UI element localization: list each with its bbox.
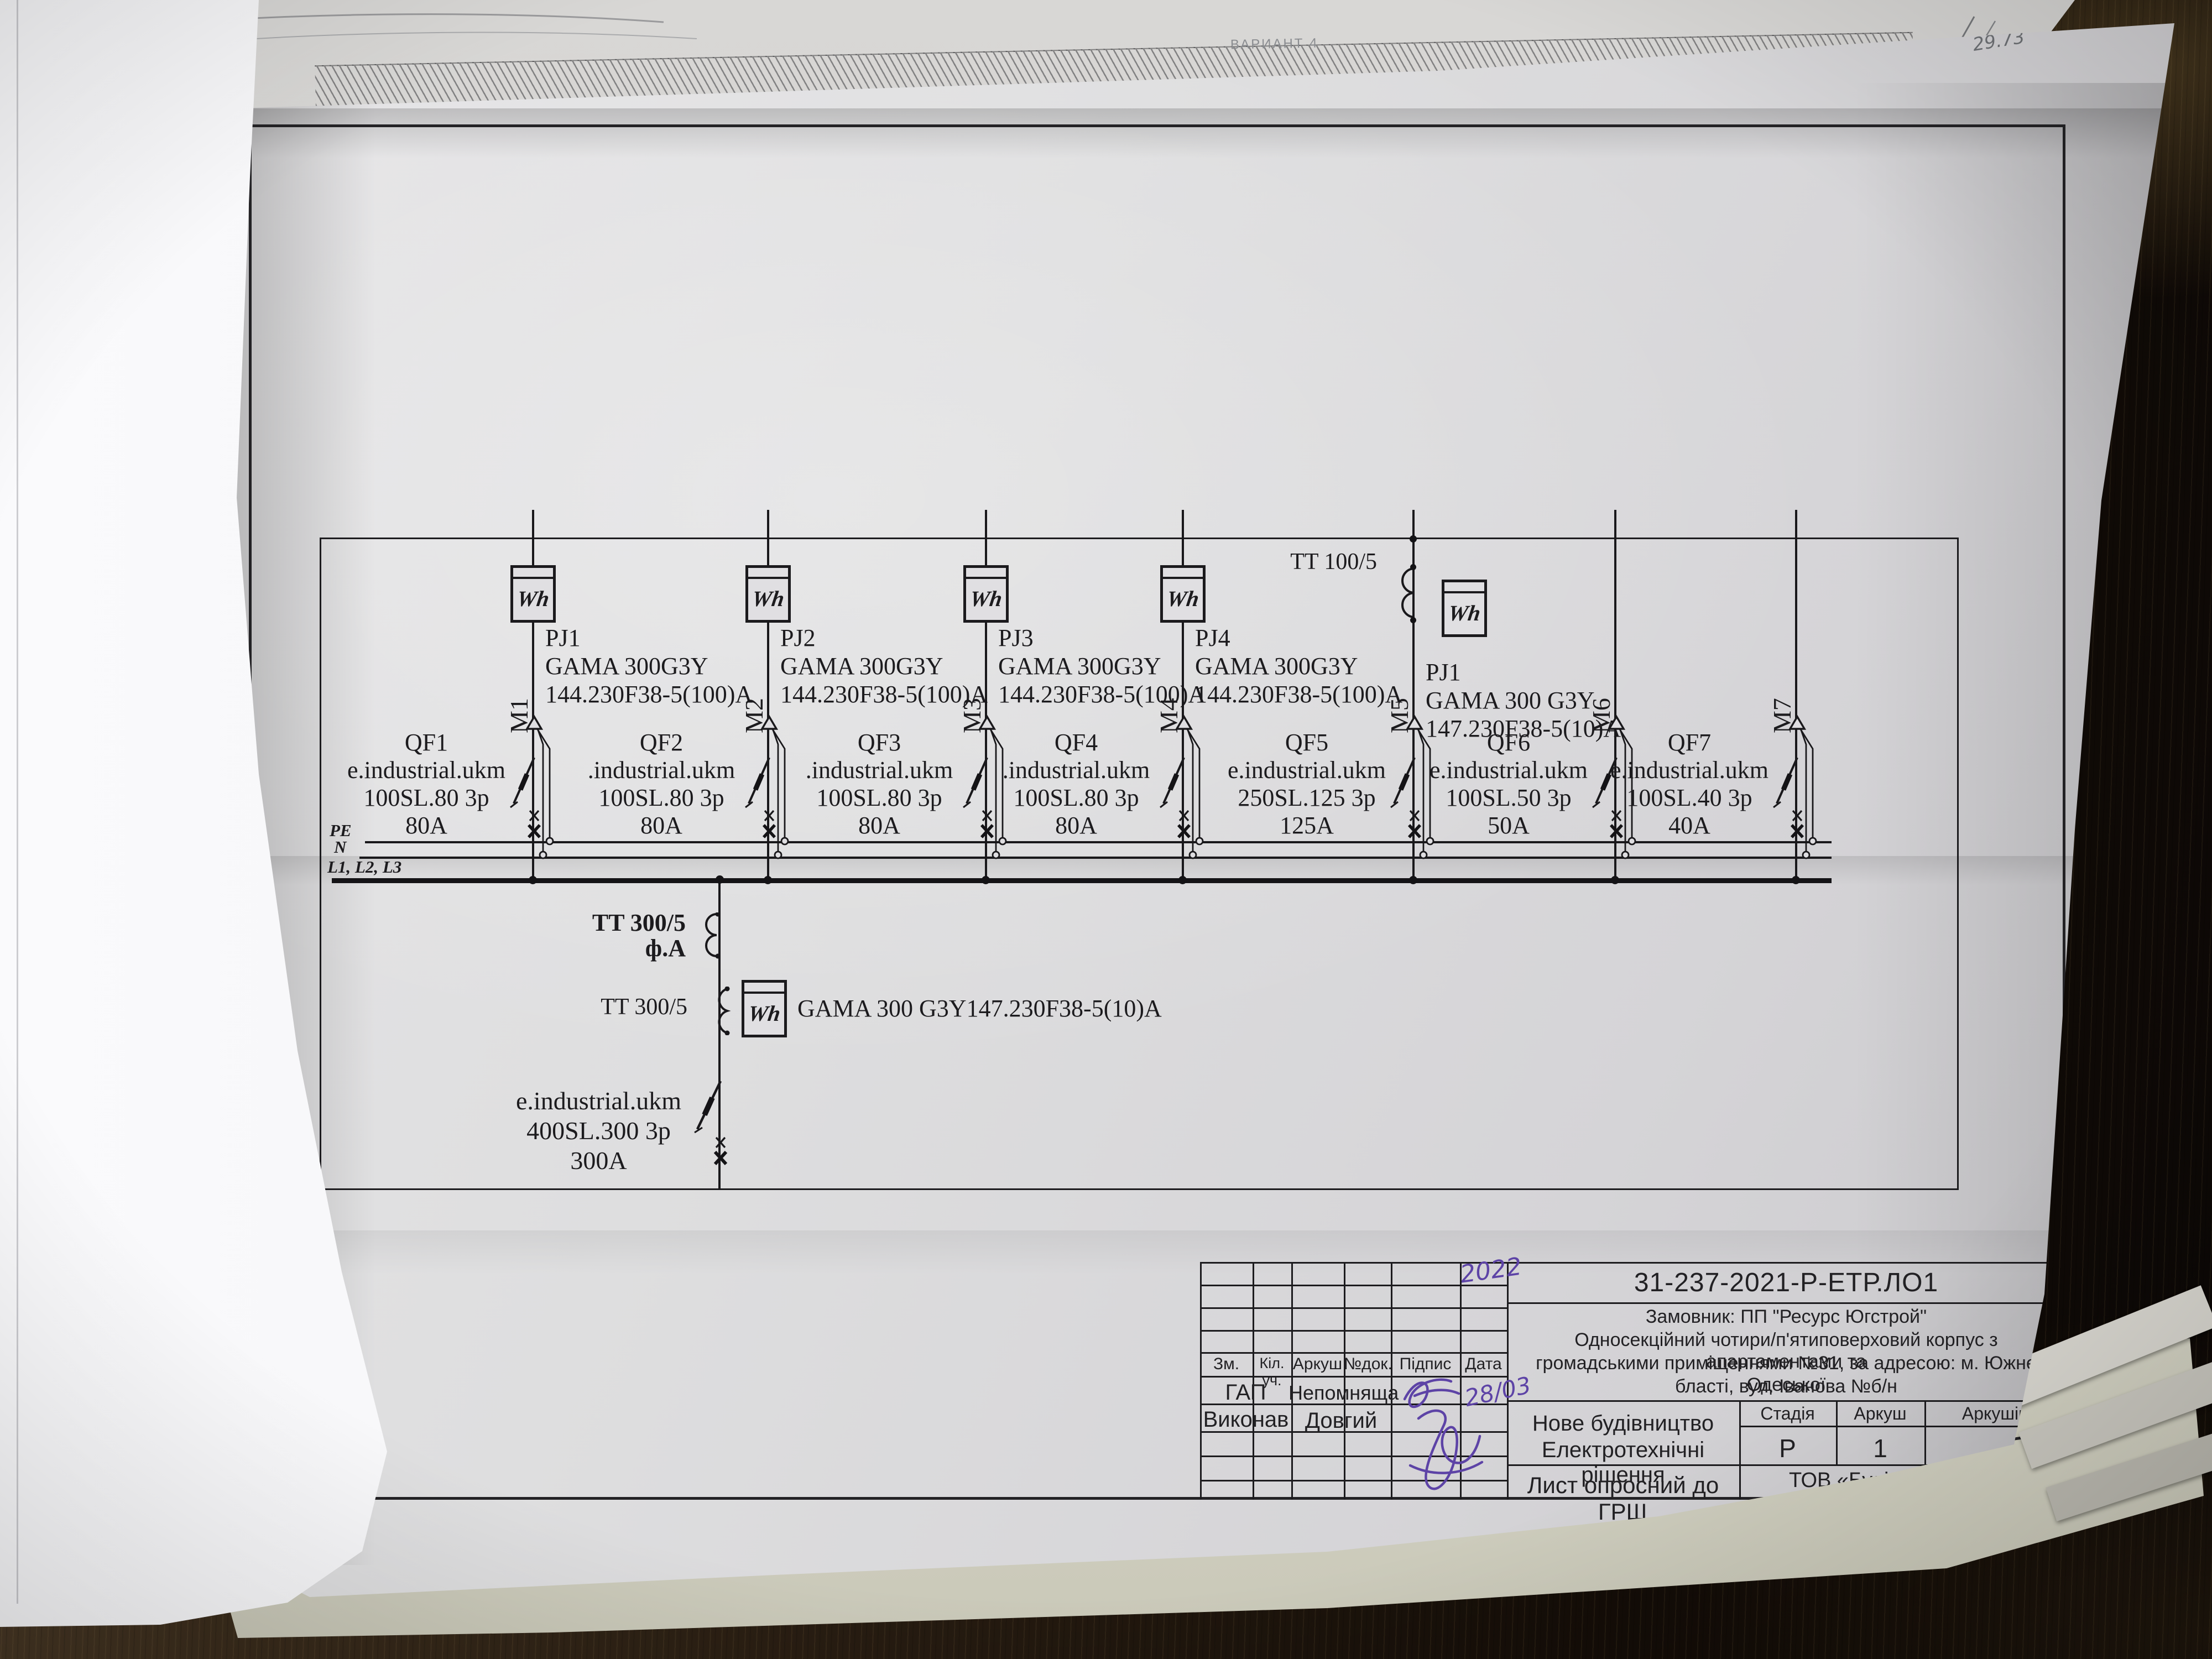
breaker-spec-line2: .industrial.ukm xyxy=(984,757,1168,784)
wh-meter-icon: Wh xyxy=(742,994,787,1034)
meter-terminal-strip xyxy=(744,983,784,994)
breaker-spec: QF3 .industrial.ukm 100SL.80 3p 80A xyxy=(787,729,972,839)
breaker-spec-line2: e.industrial.ukm xyxy=(1597,757,1782,784)
breaker-spec-line2: e.industrial.ukm xyxy=(1214,757,1399,784)
breaker-spec: QF7 e.industrial.ukm 100SL.40 3p 40A xyxy=(1597,729,1782,839)
current-transformer-icon xyxy=(690,987,732,1035)
incomer-ct1-label: TT 300/5 ф.А xyxy=(531,910,686,961)
breaker-spec-line1: QF3 xyxy=(787,729,972,757)
breaker-spec-line3: 100SL.80 3p xyxy=(787,784,972,812)
incomer-breaker-line2: 400SL.300 3p xyxy=(509,1116,688,1146)
stage-value: Р xyxy=(1739,1433,1836,1463)
ct1-label-line1: TT 300/5 xyxy=(531,910,686,936)
tb-line xyxy=(1507,1400,2065,1402)
row1-role: ГАП xyxy=(1200,1380,1291,1405)
photo-of-electrical-drawing: ВАРИАНТ 4 Формат А3 -3.720 29.73 xyxy=(0,0,2212,1659)
bus-junction-dot xyxy=(1792,876,1800,884)
project-title-1: Нове будівництво xyxy=(1512,1411,1734,1436)
col-zm: Зм. xyxy=(1200,1355,1253,1374)
breaker-spec-line3: 100SL.80 3p xyxy=(984,784,1168,812)
page-fold-line xyxy=(17,0,18,1604)
breaker-spec-line4: 80A xyxy=(984,812,1168,839)
breaker-spec-line1: QF2 xyxy=(569,729,754,757)
breaker-spec-line2: e.industrial.ukm xyxy=(334,757,519,784)
incomer-breaker-icon xyxy=(679,1073,734,1194)
row1-name: Непомняща xyxy=(1288,1381,1394,1405)
breaker-spec-line3: 100SL.40 3p xyxy=(1597,784,1782,812)
stage-header: Стадія xyxy=(1739,1404,1836,1424)
feeder-M7: M7 QF7 e.industrial.ukm 100SL.40 3p 40A xyxy=(1565,498,2052,896)
col-dok: №док. xyxy=(1344,1355,1391,1374)
project-desc-3: бласті, вул. Іванова №б/н xyxy=(1512,1376,2060,1397)
sheet-header: Аркуш xyxy=(1836,1404,1924,1424)
signature xyxy=(1388,1366,1510,1504)
breaker-spec: QF4 .industrial.ukm 100SL.80 3p 80A xyxy=(984,729,1168,839)
breaker-spec-line4: 80A xyxy=(787,812,972,839)
breaker-spec-line1: QF1 xyxy=(334,729,519,757)
tb-line xyxy=(1344,1262,1345,1500)
col-arkush: Аркуш xyxy=(1291,1355,1344,1374)
tb-line xyxy=(1200,1262,2065,1264)
breaker-spec: QF5 e.industrial.ukm 250SL.125 3p 125A xyxy=(1214,729,1399,839)
feeder-breaker-icon xyxy=(1759,713,1836,896)
breaker-spec-line4: 40A xyxy=(1597,812,1782,839)
row2-name: Довгий xyxy=(1288,1408,1394,1433)
breaker-spec-line4: 125A xyxy=(1214,812,1399,839)
breaker-spec-line1: QF5 xyxy=(1214,729,1399,757)
sheet-number: 1 xyxy=(1836,1433,1924,1463)
breaker-spec: QF2 .industrial.ukm 100SL.80 3p 80A xyxy=(569,729,754,839)
breaker-spec-line4: 80A xyxy=(334,812,519,839)
incomer-meter: Wh xyxy=(742,980,787,1037)
ct-label: TT 100/5 xyxy=(1253,549,1377,575)
incomer-meter-type: GAMA 300 G3Y147.230F38-5(10)A xyxy=(797,994,1162,1022)
ct1-label-line2: ф.А xyxy=(531,936,686,961)
tb-line xyxy=(1507,1302,2065,1304)
breaker-spec-line1: QF7 xyxy=(1597,729,1782,757)
tb-line xyxy=(1739,1426,2065,1427)
breaker-spec-line2: .industrial.ukm xyxy=(787,757,972,784)
incomer-breaker-line3: 300A xyxy=(509,1146,688,1176)
current-transformer-icon xyxy=(686,912,721,959)
breaker-spec: QF1 e.industrial.ukm 100SL.80 3p 80A xyxy=(334,729,519,839)
incomer-ct2-label: TT 300/5 xyxy=(553,993,687,1021)
incomer-breaker-label: e.industrial.ukm 400SL.300 3p 300A xyxy=(509,1086,688,1176)
doc-number: 31-237-2021-Р-ЕТР.ЛО1 xyxy=(1526,1267,2046,1298)
breaker-spec-line3: 250SL.125 3p xyxy=(1214,784,1399,812)
row2-role: Виконав xyxy=(1199,1407,1293,1432)
breaker-spec-line3: 100SL.80 3p xyxy=(569,784,754,812)
incomer-breaker-line1: e.industrial.ukm xyxy=(509,1086,688,1116)
breaker-spec-line1: QF4 xyxy=(984,729,1168,757)
breaker-spec-line2: .industrial.ukm xyxy=(569,757,754,784)
breaker-spec-line3: 100SL.80 3p xyxy=(334,784,519,812)
breaker-spec-line4: 80A xyxy=(569,812,754,839)
incomer-bus-junction xyxy=(716,875,724,884)
bus-junction-dot xyxy=(529,876,537,884)
customer-line: Замовник: ПП "Ресурс Югстрой" xyxy=(1512,1306,2060,1328)
